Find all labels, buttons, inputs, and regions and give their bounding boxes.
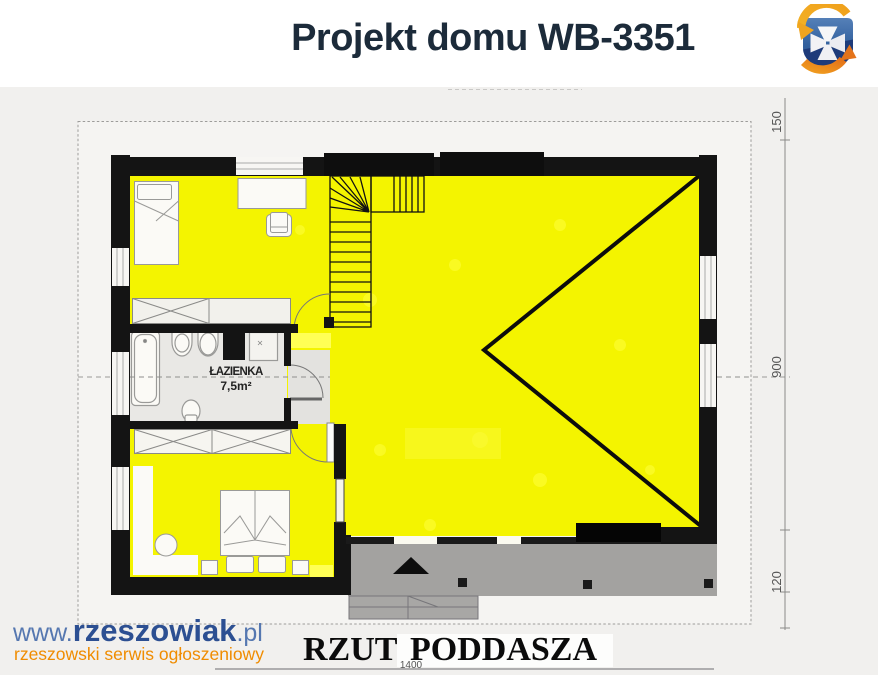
svg-text:900: 900 [769,356,784,378]
svg-text:120: 120 [769,571,784,593]
svg-text:RZUT: RZUT [303,631,398,668]
svg-text:ŁAZIENKA: ŁAZIENKA [209,366,263,378]
svg-text:PODDASZA: PODDASZA [410,631,597,668]
svg-text:7,5m²: 7,5m² [220,379,251,393]
svg-text:150: 150 [769,111,784,133]
